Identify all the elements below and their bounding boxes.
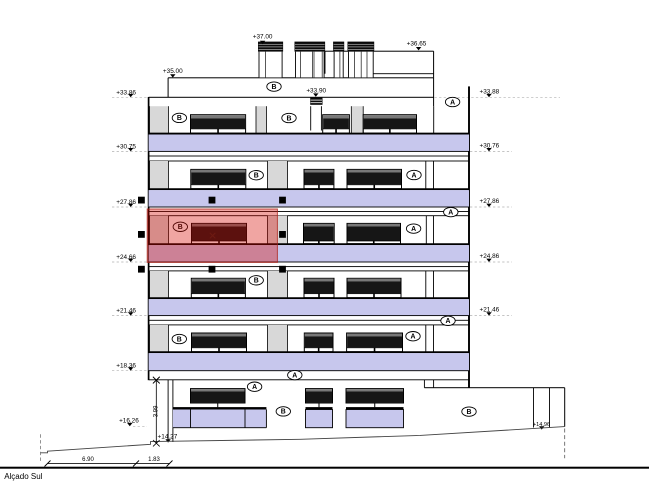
svg-text:B: B [177, 336, 182, 343]
svg-text:A: A [292, 372, 297, 379]
svg-text:B: B [254, 173, 259, 180]
svg-text:A: A [411, 334, 416, 341]
svg-text:B: B [177, 115, 182, 122]
svg-text:+36.65: +36.65 [407, 41, 427, 48]
svg-text:A: A [252, 384, 257, 391]
svg-text:A: A [450, 99, 455, 106]
svg-text:1.83: 1.83 [148, 457, 160, 463]
svg-text:B: B [287, 115, 292, 122]
svg-text:B: B [254, 278, 259, 285]
svg-text:A: A [446, 318, 451, 325]
svg-text:3.99: 3.99 [153, 405, 159, 417]
svg-text:B: B [272, 84, 277, 91]
svg-text:+33.86: +33.86 [116, 89, 136, 96]
svg-text:Alçado Sul: Alçado Sul [4, 472, 42, 481]
svg-text:+30.75: +30.75 [116, 143, 136, 150]
svg-text:A: A [411, 226, 416, 233]
svg-text:+37.00: +37.00 [253, 34, 273, 41]
svg-text:+24.66: +24.66 [116, 254, 136, 261]
svg-text:+21.46: +21.46 [116, 308, 136, 315]
svg-text:A: A [412, 172, 417, 179]
svg-text:B: B [467, 409, 472, 416]
svg-text:+27.86: +27.86 [116, 199, 136, 206]
svg-text:6.90: 6.90 [82, 457, 94, 463]
svg-text:+18.36: +18.36 [116, 363, 136, 370]
svg-text:+35.00: +35.00 [163, 68, 183, 75]
svg-text:B: B [281, 409, 286, 416]
svg-text:A: A [448, 209, 453, 216]
